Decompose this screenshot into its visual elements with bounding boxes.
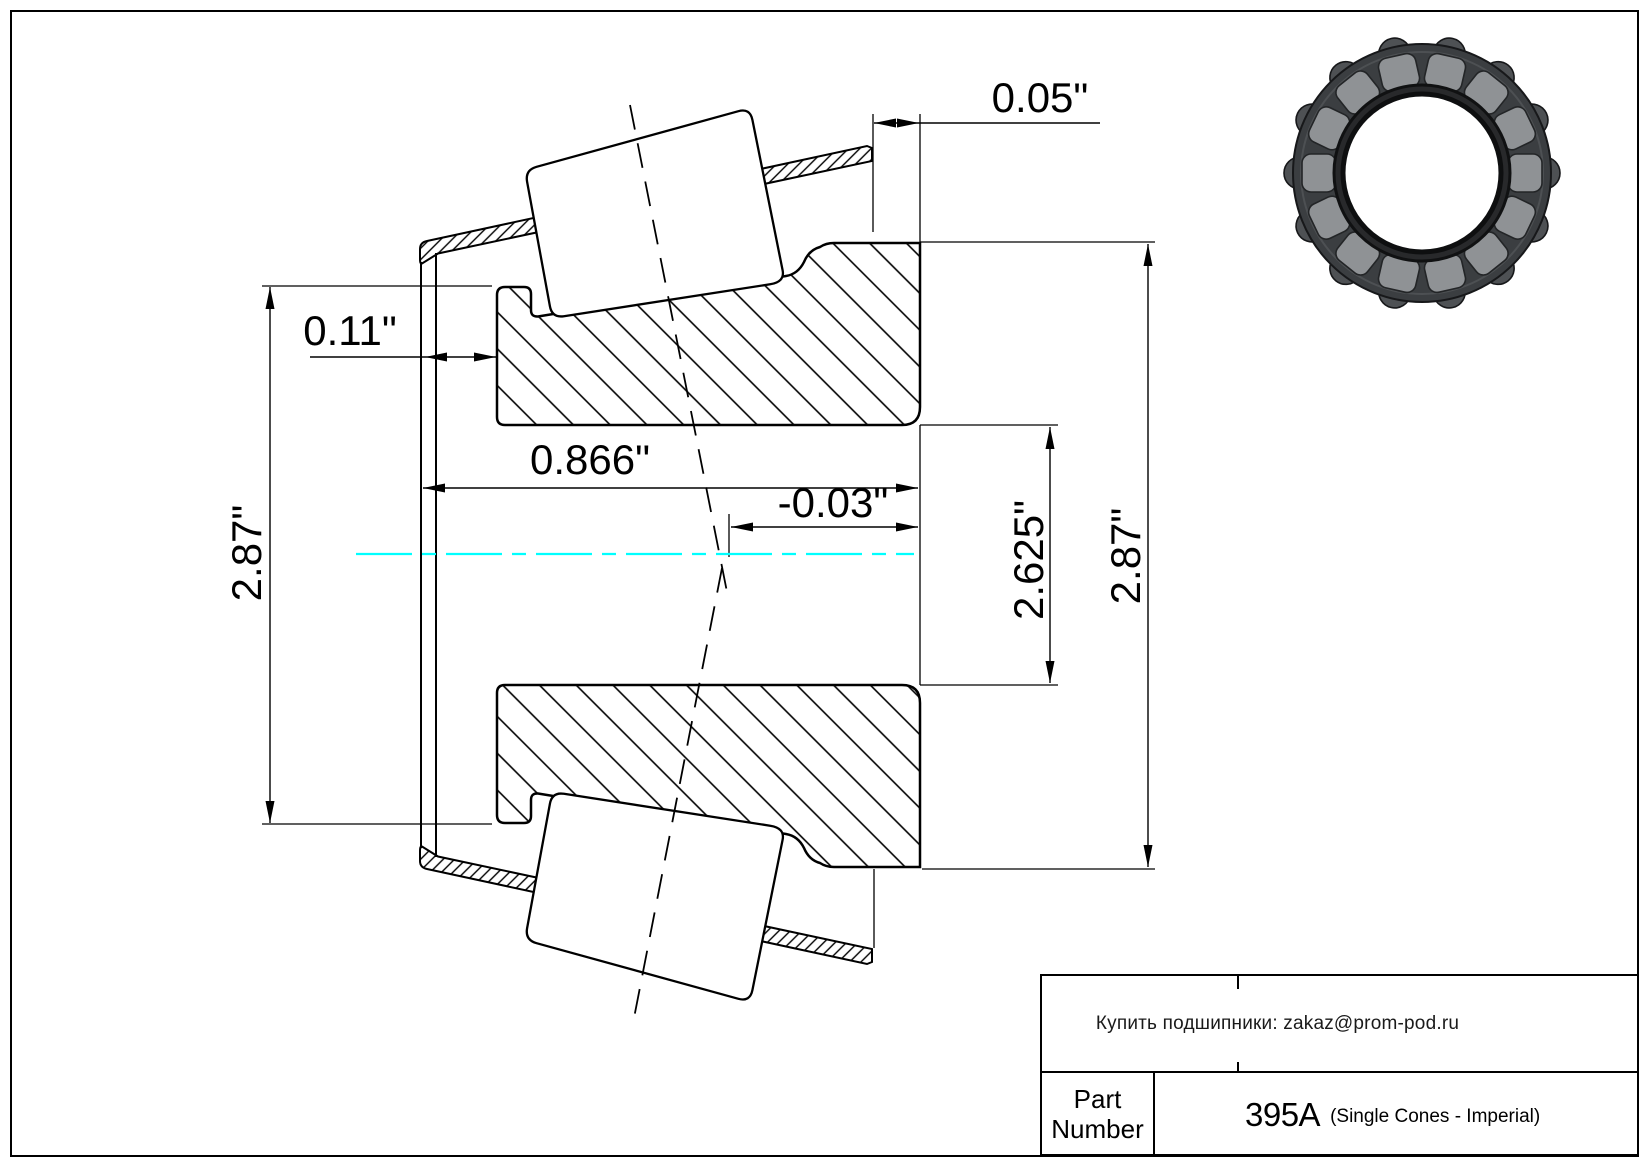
dimension-effective-center: -0.03" (731, 479, 918, 532)
dimension-label-right-diameter: 2.87" (1102, 508, 1149, 605)
dimension-label-bore-diameter: 2.625" (1005, 500, 1052, 620)
drawing-page: 0.05" 0.11" 0.866" -0.03" 2.87" (0, 0, 1649, 1167)
part-label-line1: Part (1074, 1085, 1122, 1115)
part-number-value: 395A (1245, 1096, 1320, 1134)
dimension-label-left-diameter: 2.87" (223, 505, 270, 602)
contact-text: Купить подшипники: zakaz@prom-pod.ru (1096, 1013, 1459, 1035)
bearing-photo (1284, 35, 1560, 311)
roller-bottom (527, 794, 783, 1000)
bearing-bore (1343, 94, 1501, 252)
part-label-line2: Number (1051, 1115, 1143, 1145)
title-block-part-row: Part Number 395A (Single Cones - Imperia… (1042, 1073, 1637, 1156)
roller-top (527, 111, 783, 317)
part-number-value-cell: 395A (Single Cones - Imperial) (1155, 1073, 1637, 1156)
dimension-bore-diameter: 2.625" (1005, 427, 1055, 683)
dimension-label-effective-center: -0.03" (778, 479, 889, 526)
title-block: Купить подшипники: zakaz@prom-pod.ru Par… (1040, 974, 1639, 1156)
dimension-label-cage-overhang: 0.05" (992, 74, 1089, 121)
dimension-right-diameter: 2.87" (1102, 244, 1153, 867)
table-divider-stub-bottom (1237, 1062, 1239, 1073)
dimension-front-offset: 0.11" (303, 307, 496, 362)
title-block-contact-row: Купить подшипники: zakaz@prom-pod.ru (1042, 976, 1637, 1073)
table-divider-stub-top (1237, 976, 1239, 989)
dimension-label-front-offset: 0.11" (303, 307, 397, 354)
dimension-cage-overhang: 0.05" (874, 74, 1100, 128)
part-number-label-cell: Part Number (1042, 1073, 1155, 1156)
dimension-left-diameter: 2.87" (223, 287, 275, 823)
dimension-label-cone-width: 0.866" (530, 436, 650, 483)
part-series-label: (Single Cones - Imperial) (1330, 1102, 1540, 1128)
